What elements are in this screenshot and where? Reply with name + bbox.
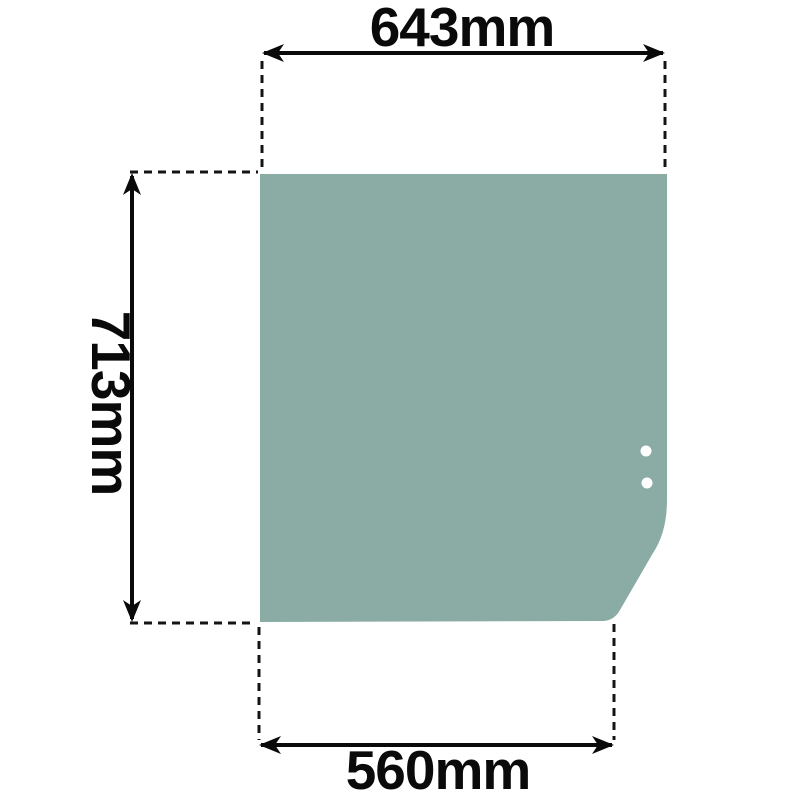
dimension-left: 713mm xyxy=(80,172,258,623)
mounting-hole-top xyxy=(641,446,652,457)
dimension-bottom: 560mm xyxy=(259,624,614,800)
dimension-top: 643mm xyxy=(262,0,665,172)
drawing-svg: 643mm 713mm 560mm xyxy=(0,0,800,800)
dimension-label-bottom: 560mm xyxy=(346,739,531,800)
dimension-label-top: 643mm xyxy=(370,0,555,58)
technical-drawing: 643mm 713mm 560mm xyxy=(0,0,800,800)
dimension-label-left: 713mm xyxy=(80,311,142,496)
mounting-hole-bottom xyxy=(642,478,653,489)
glass-panel-shape xyxy=(260,174,667,622)
